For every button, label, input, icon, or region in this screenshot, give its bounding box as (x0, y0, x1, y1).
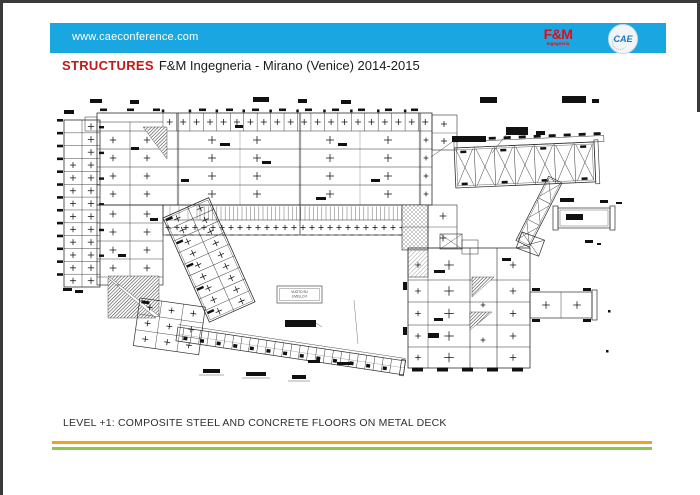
walkway (176, 325, 406, 376)
dimension-marks (199, 360, 351, 381)
title-keyword: STRUCTURES (62, 58, 154, 73)
title-text: F&M Ingegneria - Mirano (Venice) 2014-20… (159, 58, 420, 73)
bottom-right-block (403, 234, 611, 372)
cae-logo-swirl-icon (612, 35, 627, 50)
slide: { "slide": { "background": "#ffffff", "f… (0, 0, 700, 495)
photo-frame-left (0, 0, 3, 495)
photo-frame-top (0, 0, 700, 3)
slide-caption: LEVEL +1: COMPOSITE STEEL AND CONCRETE F… (63, 417, 447, 429)
slide-title: STRUCTURESF&M Ingegneria - Mirano (Venic… (62, 58, 420, 73)
floor-plan-area: VUOTO SULIVELLO 0 (50, 92, 625, 402)
conference-url[interactable]: www.caeconference.com (72, 31, 198, 43)
diagonal-bridge (516, 176, 562, 247)
joist-band (163, 205, 428, 235)
void-label: VUOTO SULIVELLO 0 (277, 286, 439, 344)
svg-text:LIVELLO 0: LIVELLO 0 (292, 294, 308, 298)
header-bar: www.caeconference.com F&M Ingegneria CAE (50, 23, 666, 53)
fm-logo-text: F&M (538, 27, 578, 41)
right-corridor (553, 198, 622, 230)
fm-logo-subtext: Ingegneria (538, 42, 578, 47)
fm-ingegneria-logo: F&M Ingegneria (538, 27, 578, 47)
svg-text:VUOTO SU: VUOTO SU (291, 290, 308, 294)
small-block (133, 298, 205, 355)
hatched-triangle-topleft (143, 127, 167, 159)
floor-plan-drawing: VUOTO SULIVELLO 0 (50, 92, 625, 402)
footer-stripe-orange (52, 441, 652, 444)
cae-conference-logo: CAE (608, 24, 638, 54)
hatched-junction (402, 115, 457, 277)
footer-stripe-green (52, 447, 652, 450)
hatched-triangles (108, 276, 159, 318)
main-slab (90, 96, 599, 285)
